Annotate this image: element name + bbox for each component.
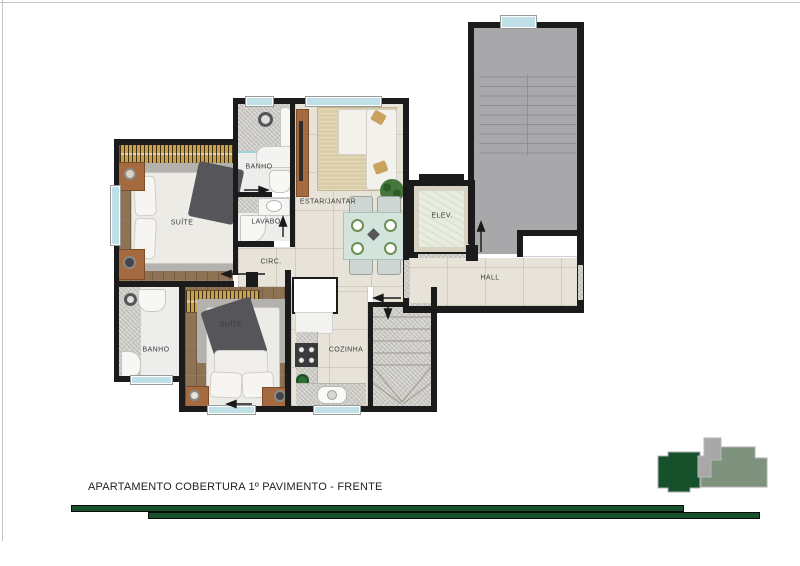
room-label-elev: ELEV. [431, 213, 452, 220]
builder-logo [650, 432, 770, 494]
internal-stair-treads [373, 317, 431, 404]
room-label-suite1: SUÍTE [171, 220, 194, 227]
room-label-circ: CIRC. [260, 259, 281, 266]
room-label-hall: HALL [480, 275, 499, 282]
room-label-suite2: SUÍTE [220, 322, 243, 329]
logo-building-green [658, 452, 700, 492]
room-label-banho1: BANHO [246, 164, 273, 171]
room-label-lavabo: LAVABO [251, 219, 280, 226]
room-label-banho2: BANHO [143, 347, 170, 354]
green-rule-bar [148, 512, 760, 519]
green-rule-bar [71, 505, 684, 512]
floor-plan-canvas: SUÍTE BANHO LAVABO CIRC. ESTAR/JANTAR EL… [0, 0, 800, 566]
room-label-cozinha: COZINHA [329, 347, 363, 354]
plan-caption: APARTAMENTO COBERTURA 1º PAVIMENTO - FRE… [88, 481, 383, 493]
stair-treads [479, 74, 576, 156]
room-label-estar: ESTAR/JANTAR [300, 199, 356, 206]
